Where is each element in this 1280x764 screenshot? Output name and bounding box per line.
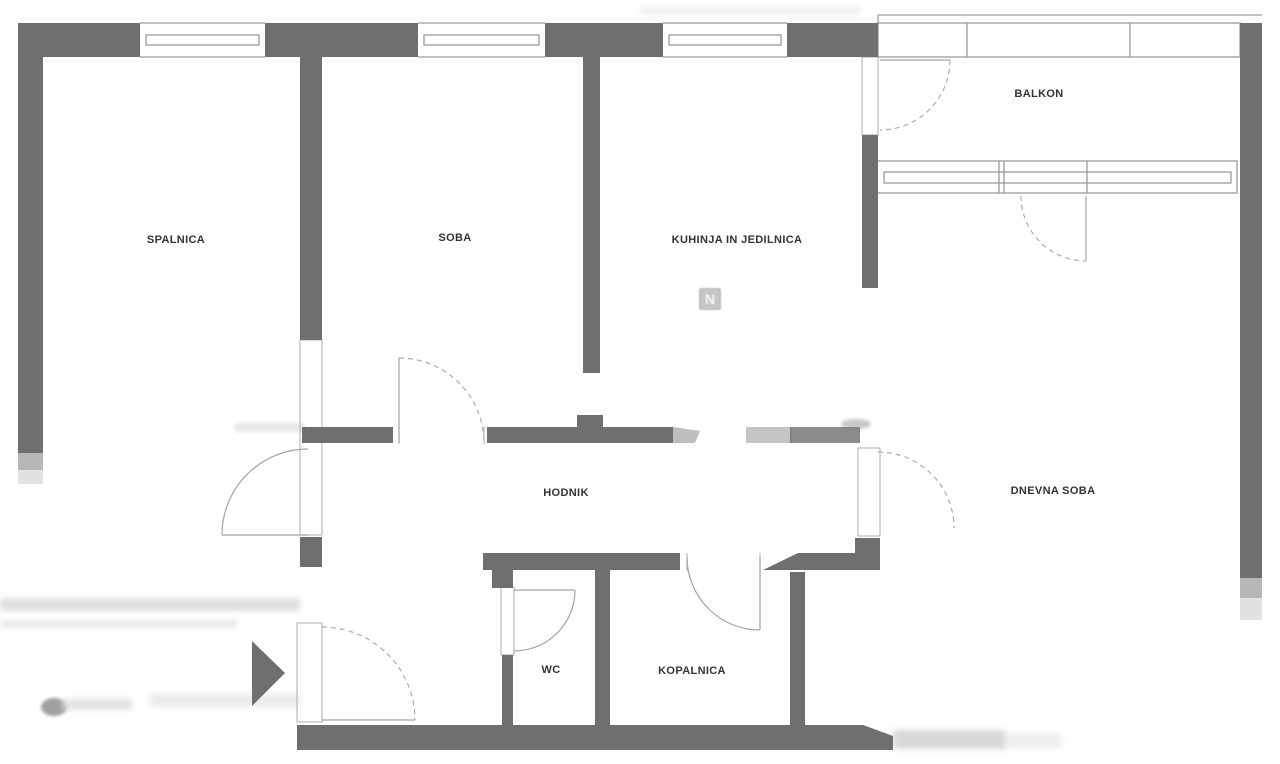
left-wall-fade: [18, 453, 43, 470]
room-label-wc: WC: [541, 664, 560, 676]
door-swing-arc: [514, 590, 575, 651]
door-frame-wc: [501, 587, 514, 655]
kopalnica-right-wall: [790, 572, 805, 725]
dnevna-door-post: [855, 538, 880, 570]
door-frame-dnevna: [858, 448, 880, 536]
door-balkon-dnevna: [1021, 196, 1086, 261]
bottom-wall: [297, 725, 863, 750]
top-wall-segment-4: [787, 23, 878, 57]
parapet-outer: [877, 161, 1237, 193]
door-hodnik-dnevna: [878, 452, 954, 528]
room-label-hodnik: HODNIK: [543, 487, 589, 499]
balcony-top-wall-band: [878, 23, 1240, 57]
door-swing-arc: [880, 60, 950, 130]
right-wall-fade-2: [1240, 598, 1262, 620]
hodnik-top-wall-right: [790, 427, 860, 443]
smudge-hodnik-wall-left: [235, 423, 305, 432]
hodnik-top-wall-taper: [673, 427, 700, 443]
wc-left-wall: [502, 655, 513, 725]
room-label-dnevna: DNEVNA SOBA: [1011, 485, 1096, 497]
faded-bottom-wall-tail-2: [1000, 733, 1062, 748]
kuhinja-balkon-wall: [862, 135, 878, 288]
door-kopalnica: [687, 557, 760, 630]
window-glass: [424, 35, 539, 45]
faded-wall-smudge-spalnica-bottom: [0, 598, 300, 611]
watermark-n-icon: N: [699, 288, 721, 310]
balcony-parapet-window: [877, 161, 1237, 193]
smudge-bottom-left-2: [150, 694, 300, 707]
door-swing-arc: [322, 627, 415, 720]
hodnik-top-wall-eroded: [746, 427, 792, 443]
doors: [222, 60, 1086, 720]
left-wall-fade-2: [18, 470, 43, 484]
window-kuhinja: [663, 23, 787, 57]
door-swing-arc: [399, 358, 484, 443]
window-glass: [146, 35, 259, 45]
hodnik-bottom-wall-wedge: [763, 553, 867, 570]
top-wall-segment-3: [545, 23, 663, 57]
floor-plan-drawing: [0, 0, 1280, 764]
door-swing-arc: [878, 452, 954, 528]
smudge-bottom-left: [62, 699, 132, 710]
balcony-outline: [878, 15, 1262, 57]
window-spalnica: [140, 23, 265, 57]
room-label-balkon: BALKON: [1014, 88, 1063, 100]
window-soba: [418, 23, 545, 57]
faded-bottom-wall-tail: [893, 730, 1005, 749]
hodnik-top-wall-left: [302, 427, 393, 443]
hodnik-bottom-wall: [483, 553, 680, 570]
room-label-soba: SOBA: [438, 232, 471, 244]
outer-walls: [18, 23, 1262, 750]
right-wall-fade: [1240, 578, 1262, 598]
hodnik-wall-bump: [577, 415, 603, 428]
room-label-spalnica: SPALNICA: [147, 234, 205, 246]
right-wall: [1240, 23, 1262, 578]
scan-artifacts: [0, 6, 1062, 749]
hodnik-top-wall-mid: [487, 427, 673, 443]
door-swing-arc: [222, 449, 308, 535]
interior-walls: [300, 57, 880, 725]
wc-kopalnica-wall: [595, 570, 610, 725]
door-swing-arc: [1021, 196, 1086, 261]
faded-wall-smudge-spalnica-bottom-2: [0, 620, 238, 628]
bottom-wall-taper: [863, 725, 893, 750]
door-wc: [514, 590, 575, 651]
top-wall-segment-2: [265, 23, 418, 57]
soba-kuhinja-wall: [583, 57, 600, 373]
spalnica-soba-wall: [300, 57, 322, 340]
smudge-top: [640, 6, 860, 15]
room-label-kuhinja: KUHINJA IN JEDILNICA: [672, 234, 803, 246]
door-entrance: [322, 627, 415, 720]
parapet-glass: [884, 172, 1231, 183]
door-frame-balkon-kuhinja: [862, 57, 878, 135]
door-kuhinja-balkon: [880, 60, 950, 130]
door-soba: [399, 358, 484, 443]
left-wall: [18, 23, 43, 453]
room-label-kopalnica: KOPALNICA: [658, 665, 726, 677]
door-frame-entrance: [297, 623, 322, 722]
window-glass: [669, 35, 781, 45]
door-swing-arc: [687, 557, 760, 630]
spalnica-door-post: [300, 537, 322, 567]
door-spalnica: [222, 449, 308, 535]
wc-wall-stub: [492, 570, 513, 588]
floor-plan: SPALNICA SOBA KUHINJA IN JEDILNICA BALKO…: [0, 0, 1280, 764]
